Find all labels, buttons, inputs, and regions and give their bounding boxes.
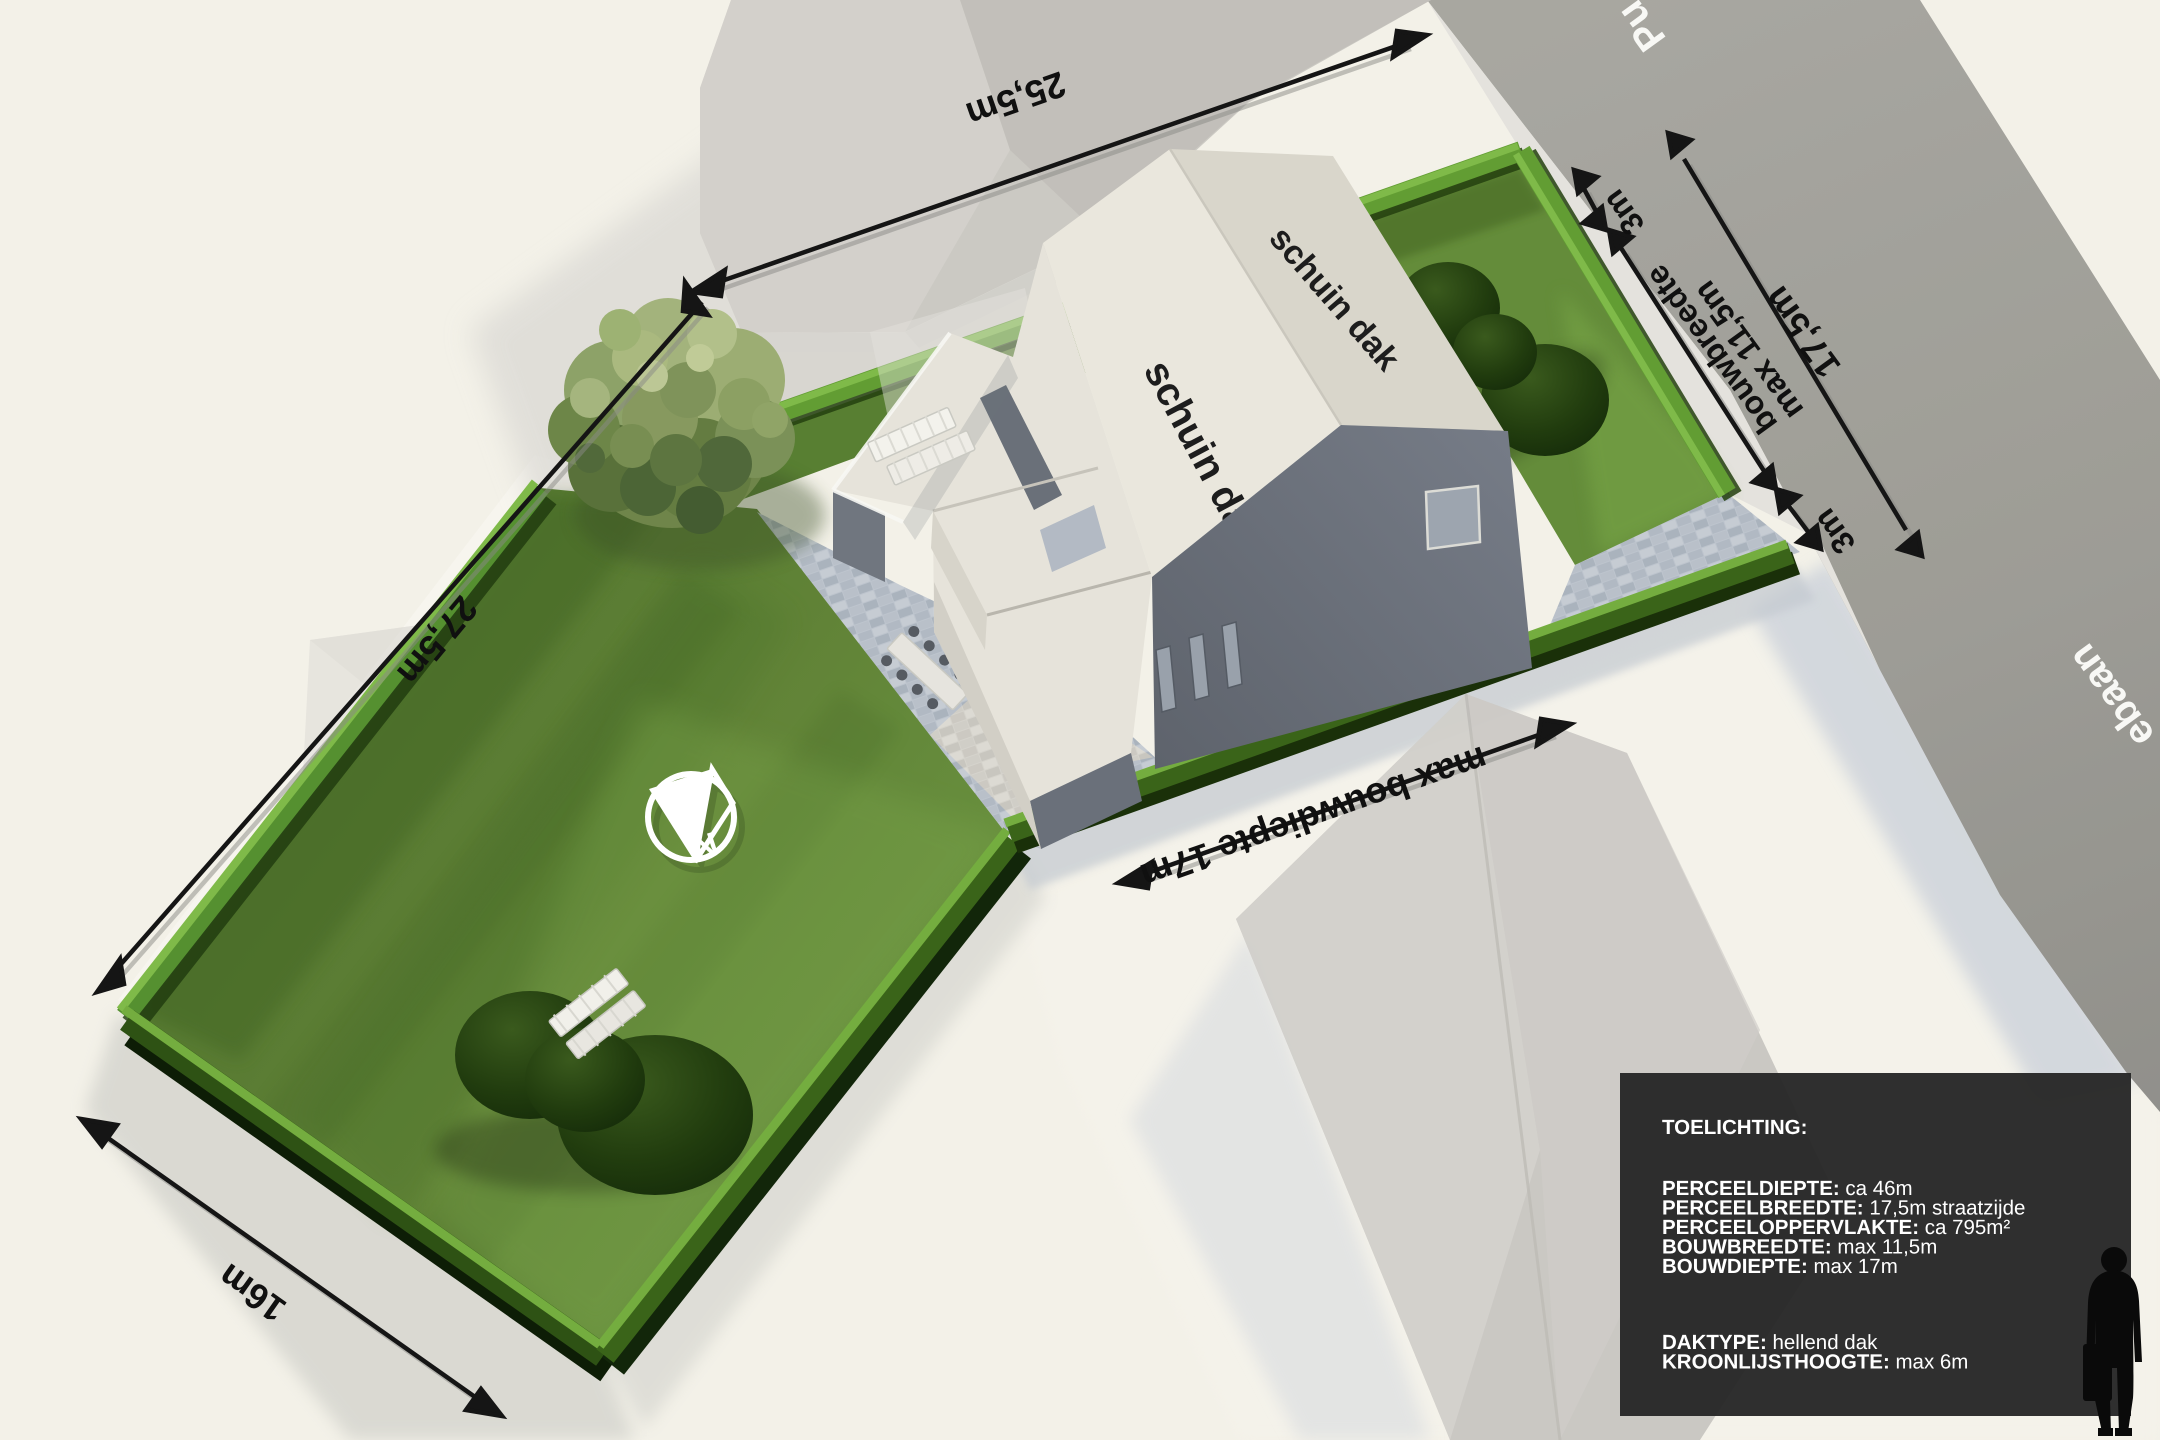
svg-text:KROONLIJSTHOOGTE: max 6m: KROONLIJSTHOOGTE: max 6m	[1662, 1351, 1968, 1374]
svg-text:BOUWDIEPTE: max 17m: BOUWDIEPTE: max 17m	[1662, 1255, 1898, 1278]
svg-text:TOELICHTING:: TOELICHTING:	[1662, 1116, 1807, 1139]
